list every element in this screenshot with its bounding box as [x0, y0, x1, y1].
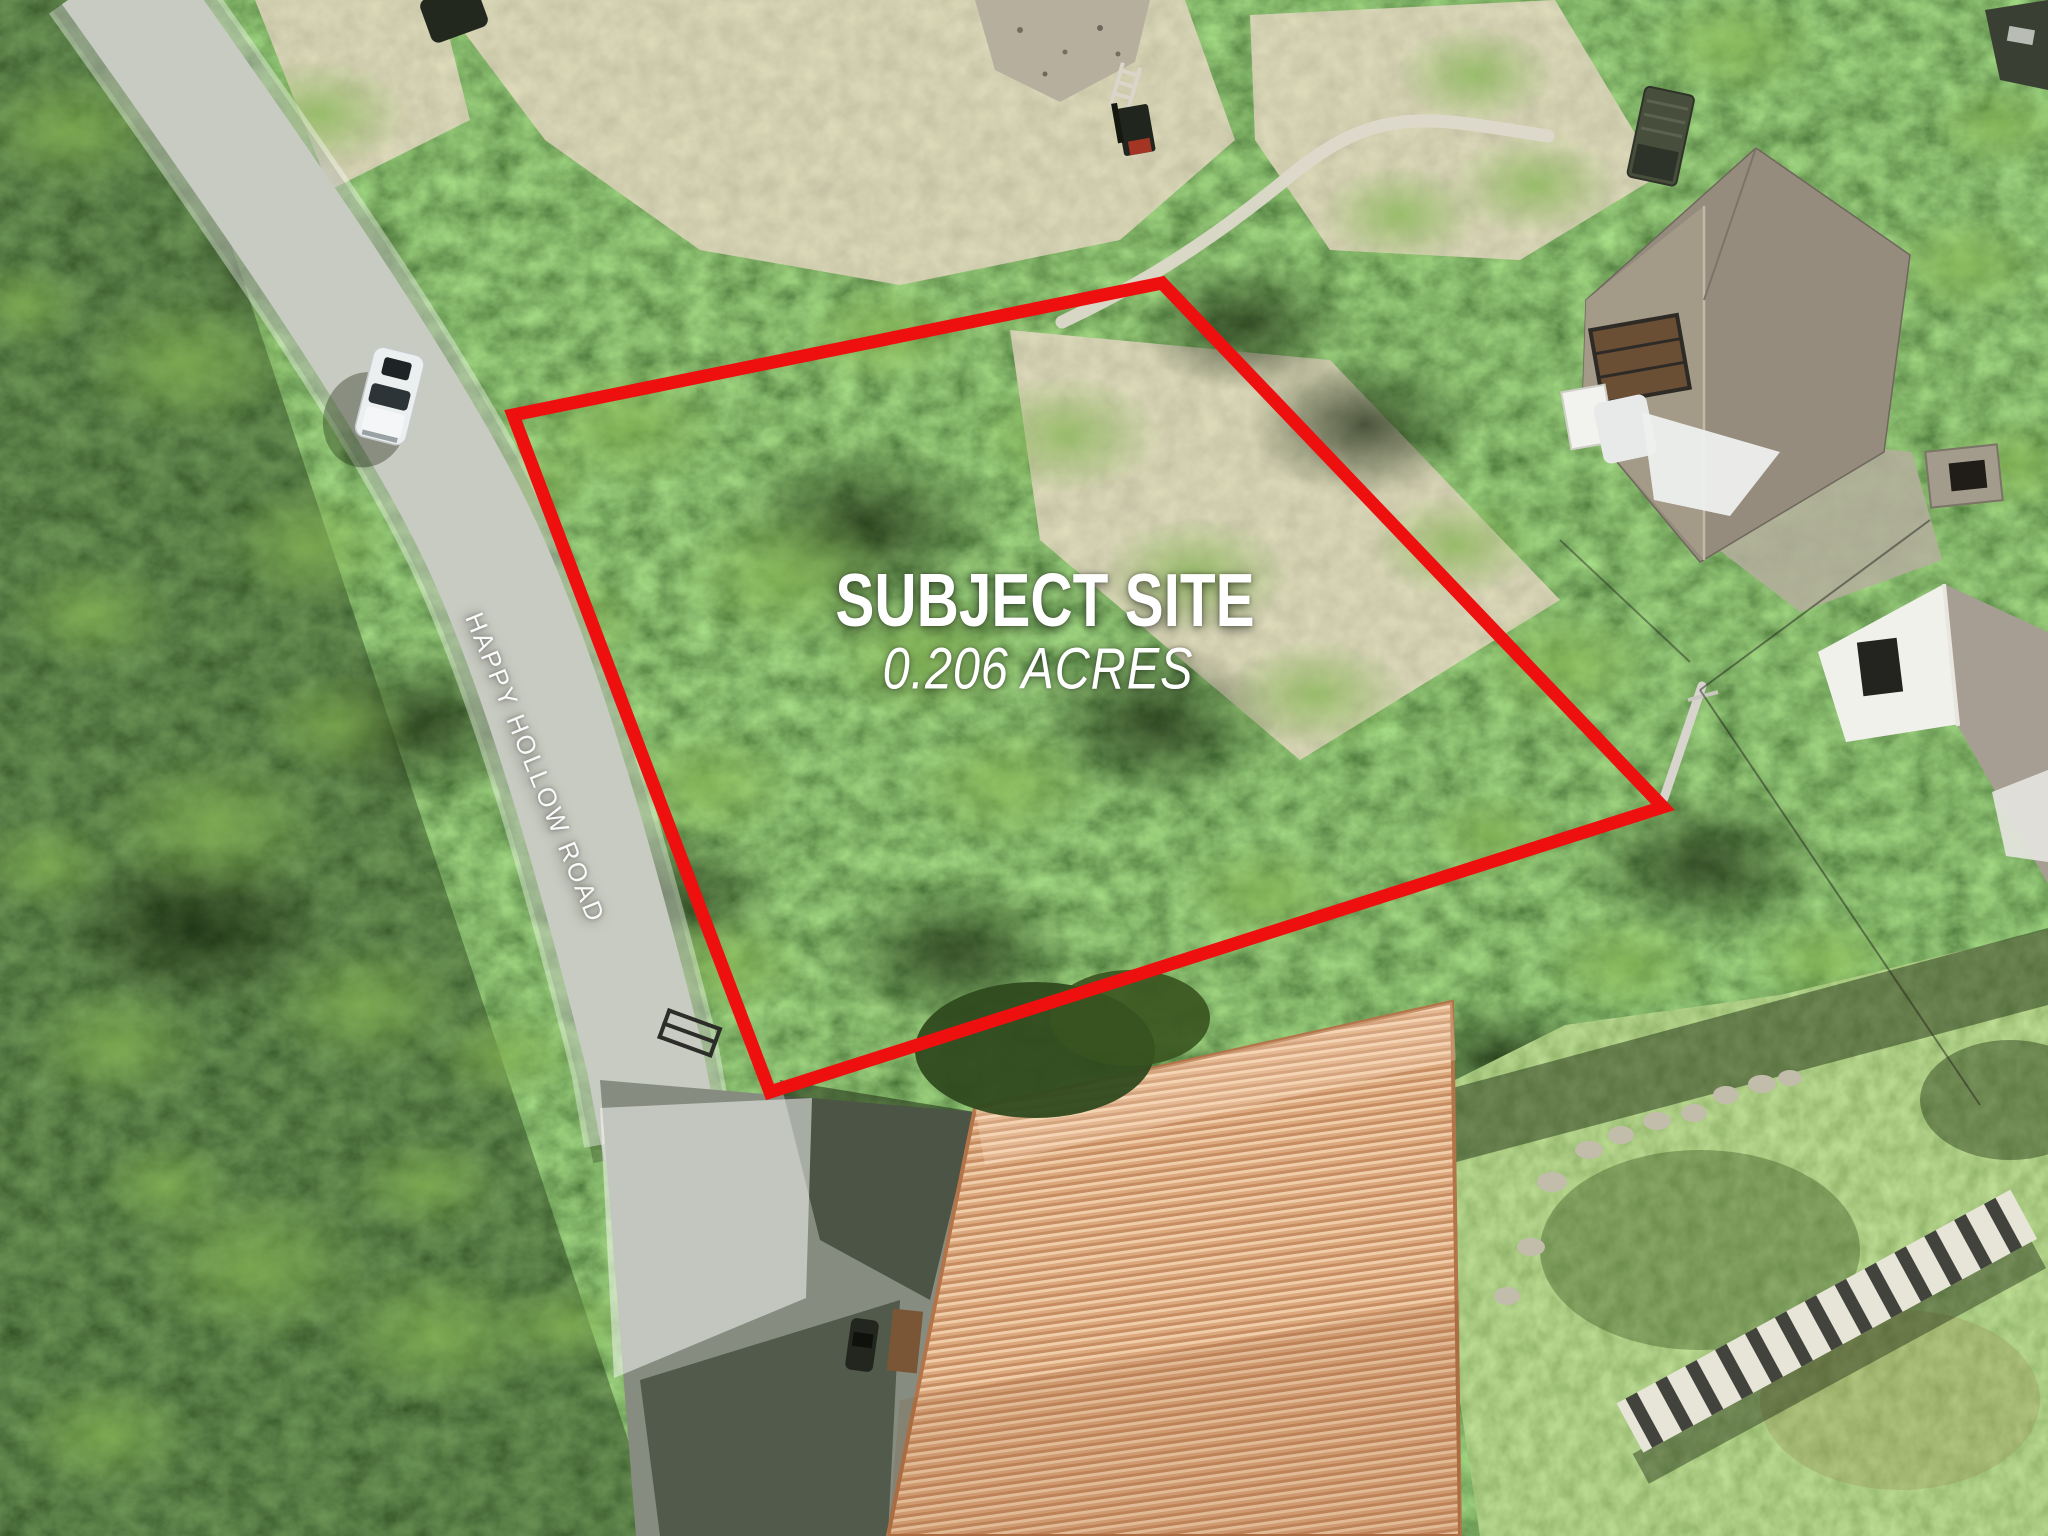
overhanging-branch-2 [1050, 970, 1210, 1066]
aerial-scene [0, 0, 2048, 1536]
aerial-photo: SUBJECT SITE 0.206 ACRES HAPPY HOLLOW RO… [0, 0, 2048, 1536]
outdoor-fireplace [1925, 444, 2002, 507]
outbuilding-door [1857, 638, 1903, 696]
site-title-label: SUBJECT SITE [835, 557, 1254, 643]
site-acreage-label: 0.206 ACRES [883, 636, 1194, 703]
